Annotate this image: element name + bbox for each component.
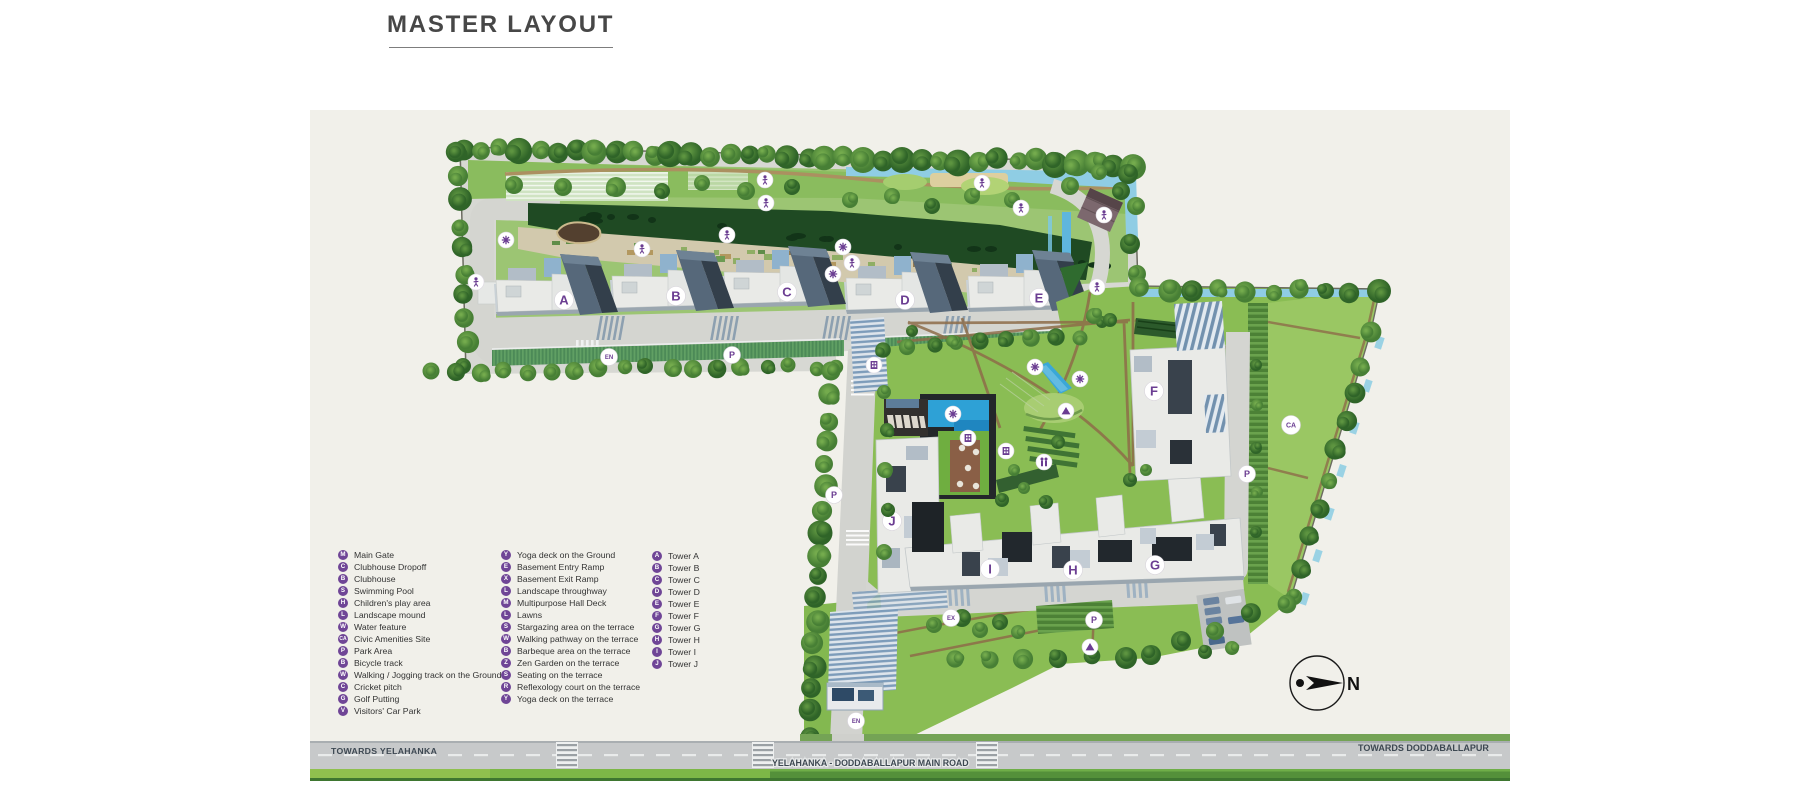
svg-text:A: A — [559, 293, 569, 308]
svg-text:P: P — [1091, 615, 1097, 625]
svg-text:CA: CA — [1286, 423, 1296, 430]
svg-text:F: F — [1150, 384, 1158, 399]
svg-text:P: P — [1244, 469, 1250, 479]
svg-text:TOWARDS YELAHANKA: TOWARDS YELAHANKA — [331, 746, 438, 756]
svg-text:EN: EN — [605, 355, 613, 361]
svg-text:P: P — [729, 350, 735, 360]
svg-text:TOWARDS DODDABALLAPUR: TOWARDS DODDABALLAPUR — [1358, 743, 1489, 753]
svg-text:I: I — [988, 562, 992, 577]
svg-text:G: G — [1150, 558, 1160, 573]
svg-text:EX: EX — [947, 616, 955, 622]
svg-text:B: B — [671, 289, 680, 304]
svg-text:D: D — [900, 293, 909, 308]
svg-text:C: C — [782, 285, 792, 300]
svg-text:P: P — [831, 490, 837, 500]
svg-text:E: E — [1035, 291, 1044, 306]
svg-text:YELAHANKA - DODDABALLAPUR MAIN: YELAHANKA - DODDABALLAPUR MAIN ROAD — [772, 758, 969, 768]
svg-text:EN: EN — [852, 719, 860, 725]
svg-text:H: H — [1068, 563, 1077, 578]
svg-text:N: N — [1347, 674, 1360, 694]
